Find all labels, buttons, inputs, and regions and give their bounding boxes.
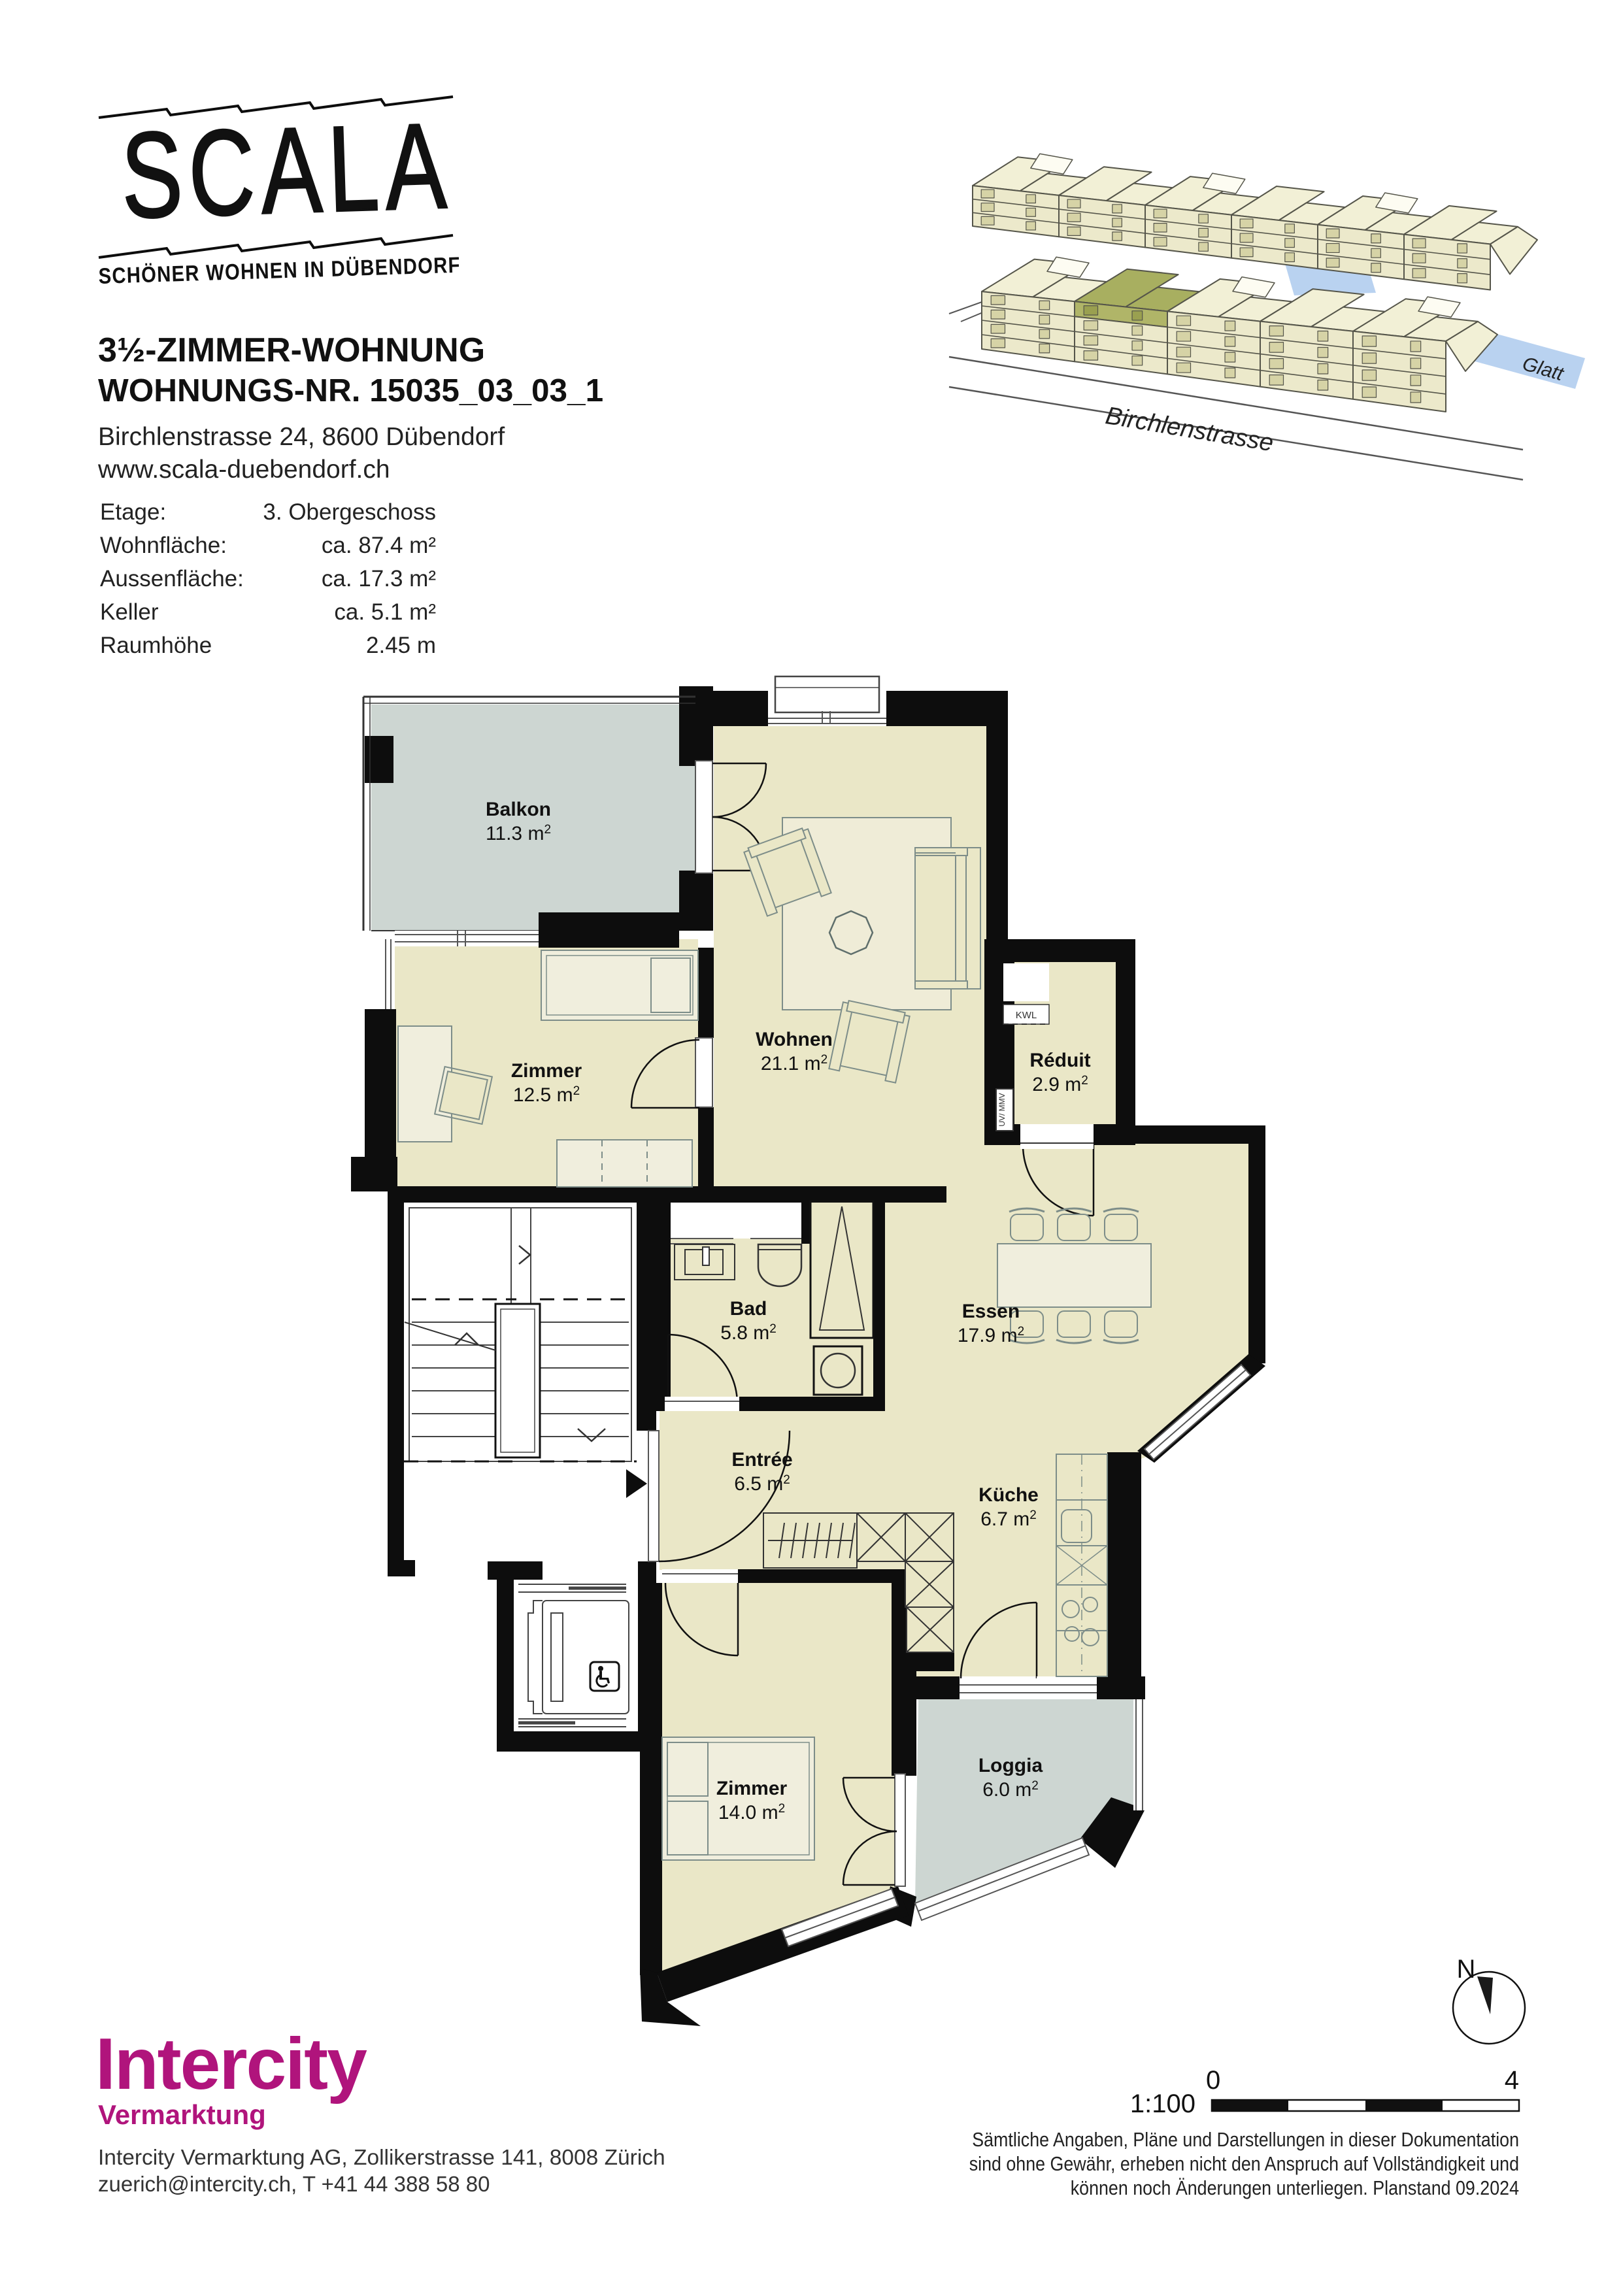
svg-text:Keller: Keller xyxy=(100,599,159,625)
svg-text:6.5 m2: 6.5 m2 xyxy=(734,1473,790,1495)
svg-text:Réduit: Réduit xyxy=(1029,1050,1090,1071)
svg-text:Etage:: Etage: xyxy=(100,499,166,525)
svg-text:KWL: KWL xyxy=(1016,1010,1037,1021)
svg-text:21.1 m2: 21.1 m2 xyxy=(761,1053,827,1074)
svg-text:2.45 m: 2.45 m xyxy=(366,633,436,658)
svg-text:Raumhöhe: Raumhöhe xyxy=(100,633,212,658)
svg-text:ca. 17.3 m²: ca. 17.3 m² xyxy=(322,566,436,591)
svg-text:ca. 87.4 m²: ca. 87.4 m² xyxy=(322,533,436,558)
svg-text:0: 0 xyxy=(1206,2066,1220,2095)
svg-text:11.3 m2: 11.3 m2 xyxy=(486,823,551,844)
svg-text:Aussenfläche:: Aussenfläche: xyxy=(100,566,244,591)
svg-text:3½-ZIMMER-WOHNUNG: 3½-ZIMMER-WOHNUNG xyxy=(98,331,485,369)
svg-text:17.9 m2: 17.9 m2 xyxy=(958,1325,1024,1346)
svg-text:Intercity: Intercity xyxy=(95,2023,367,2105)
svg-text:Birchlenstrasse 24, 8600 Düben: Birchlenstrasse 24, 8600 Dübendorf xyxy=(98,423,505,451)
svg-text:ca. 5.1 m²: ca. 5.1 m² xyxy=(334,599,436,625)
svg-text:Entrée: Entrée xyxy=(731,1449,792,1471)
svg-text:Wohnen: Wohnen xyxy=(756,1029,833,1050)
svg-text:6.7 m2: 6.7 m2 xyxy=(980,1508,1037,1530)
svg-text:4: 4 xyxy=(1505,2066,1519,2095)
svg-text:Zimmer: Zimmer xyxy=(511,1060,582,1082)
svg-text:zuerich@intercity.ch, T +41 44: zuerich@intercity.ch, T +41 44 388 58 80 xyxy=(98,2172,490,2196)
svg-text:14.0 m2: 14.0 m2 xyxy=(718,1802,785,1823)
svg-text:N: N xyxy=(1457,1955,1476,1984)
svg-text:UV/ MMV: UV/ MMV xyxy=(997,1093,1007,1126)
svg-text:Bad: Bad xyxy=(730,1298,767,1320)
svg-text:Vermarktung: Vermarktung xyxy=(98,2099,266,2130)
svg-text:Zimmer: Zimmer xyxy=(716,1778,788,1799)
svg-text:Essen: Essen xyxy=(962,1301,1020,1322)
svg-text:Intercity Vermarktung AG, Zoll: Intercity Vermarktung AG, Zollikerstrass… xyxy=(98,2146,665,2170)
svg-text:6.0 m2: 6.0 m2 xyxy=(982,1779,1039,1801)
svg-text:Wohnfläche:: Wohnfläche: xyxy=(100,533,227,558)
svg-text:3. Obergeschoss: 3. Obergeschoss xyxy=(263,499,436,525)
svg-text:Loggia: Loggia xyxy=(978,1755,1043,1776)
svg-text:www.scala-duebendorf.ch: www.scala-duebendorf.ch xyxy=(97,456,390,484)
svg-text:SCALA: SCALA xyxy=(120,97,454,244)
svg-text:2.9 m2: 2.9 m2 xyxy=(1032,1074,1088,1095)
svg-text:können noch Änderungen unterli: können noch Änderungen unterliegen. Plan… xyxy=(1071,2177,1519,2199)
svg-text:Balkon: Balkon xyxy=(486,799,551,820)
svg-text:1:100: 1:100 xyxy=(1130,2089,1195,2118)
svg-text:12.5 m2: 12.5 m2 xyxy=(513,1084,580,1106)
svg-text:Sämtliche Angaben, Pläne und D: Sämtliche Angaben, Pläne und Darstellung… xyxy=(972,2129,1519,2151)
svg-text:5.8 m2: 5.8 m2 xyxy=(720,1322,777,1344)
svg-text:Küche: Küche xyxy=(978,1484,1039,1506)
svg-text:sind ohne Gewähr, erheben nich: sind ohne Gewähr, erheben nicht den Ansp… xyxy=(969,2153,1519,2175)
svg-text:WOHNUNGS-NR. 15035_03_03_1: WOHNUNGS-NR. 15035_03_03_1 xyxy=(98,373,603,408)
